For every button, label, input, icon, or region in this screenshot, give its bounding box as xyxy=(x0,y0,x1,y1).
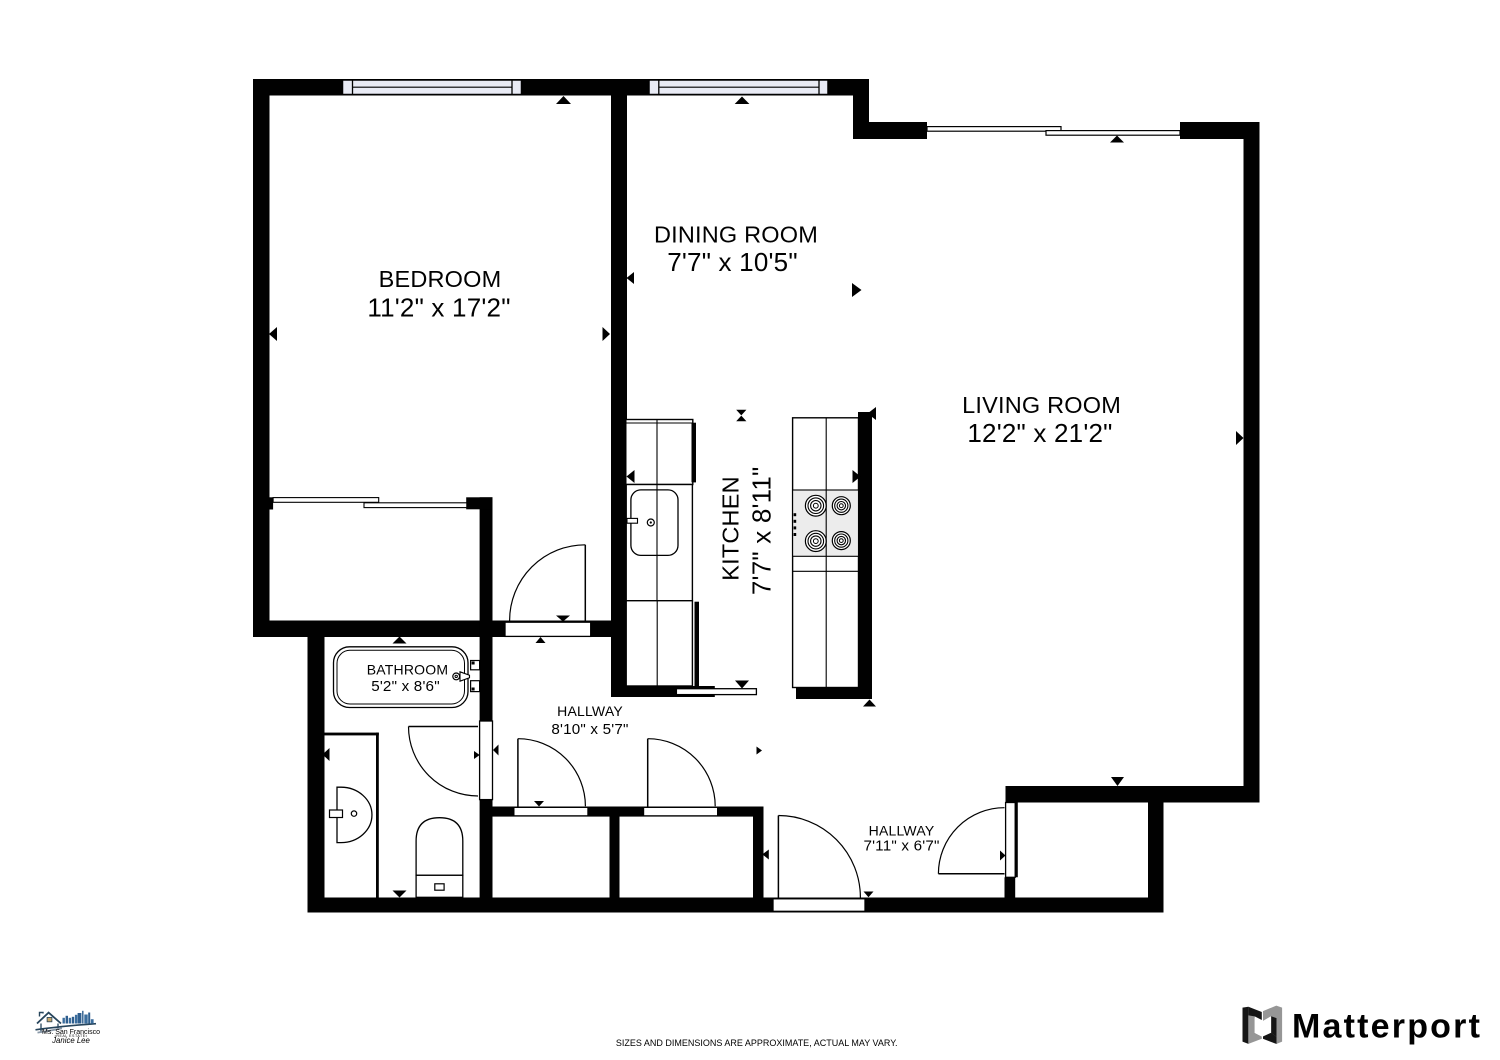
svg-text:BEDROOM: BEDROOM xyxy=(379,266,502,292)
svg-text:BATHROOM: BATHROOM xyxy=(367,662,448,678)
svg-text:HALLWAY: HALLWAY xyxy=(557,703,623,719)
svg-text:8'10" x 5'7": 8'10" x 5'7" xyxy=(551,721,628,738)
svg-text:11'2" x 17'2": 11'2" x 17'2" xyxy=(367,292,510,322)
svg-text:SIZES AND DIMENSIONS ARE APPRO: SIZES AND DIMENSIONS ARE APPROXIMATE, AC… xyxy=(616,1038,898,1048)
svg-text:7'11" x 6'7": 7'11" x 6'7" xyxy=(863,838,939,855)
svg-text:KITCHEN: KITCHEN xyxy=(718,476,744,581)
svg-text:Matterport: Matterport xyxy=(1292,1007,1482,1045)
svg-text:DINING ROOM: DINING ROOM xyxy=(654,222,818,248)
svg-text:12'2" x 21'2": 12'2" x 21'2" xyxy=(967,418,1112,448)
svg-text:LIVING ROOM: LIVING ROOM xyxy=(962,392,1121,418)
svg-text:Janice Lee: Janice Lee xyxy=(51,1036,90,1045)
svg-text:5'2" x 8'6": 5'2" x 8'6" xyxy=(371,678,440,695)
svg-text:7'7" x 8'11": 7'7" x 8'11" xyxy=(747,466,777,595)
svg-text:HALLWAY: HALLWAY xyxy=(869,823,935,839)
svg-text:7'7" x 10'5": 7'7" x 10'5" xyxy=(667,247,798,277)
